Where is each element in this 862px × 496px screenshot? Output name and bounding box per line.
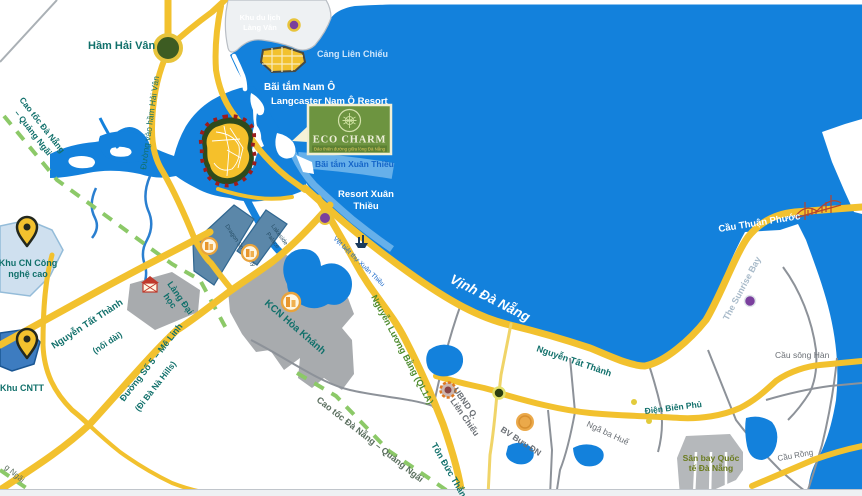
svg-text:Bãi tắm Nam Ô: Bãi tắm Nam Ô — [264, 80, 335, 93]
svg-text:Sân bay Quốc: Sân bay Quốc — [683, 453, 740, 463]
svg-text:tế Đà Nẵng: tế Đà Nẵng — [689, 462, 733, 473]
svg-text:Bãi tắm Xuân Thiều: Bãi tắm Xuân Thiều — [315, 158, 394, 169]
svg-text:ECO CHARM: ECO CHARM — [313, 135, 386, 146]
svg-text:Khu CNTT: Khu CNTT — [0, 383, 44, 393]
svg-text:Cảng Liên Chiểu: Cảng Liên Chiểu — [317, 49, 388, 59]
svg-text:Khu CN Công: Khu CN Công — [0, 258, 57, 268]
svg-text:Đảo thiên đường giữa lòng Đà N: Đảo thiên đường giữa lòng Đà Nẵng — [314, 147, 386, 152]
svg-text:Hầm Hải Vân: Hầm Hải Vân — [88, 40, 156, 52]
svg-text:Khu du lịch: Khu du lịch — [240, 13, 281, 22]
svg-text:Thiều: Thiều — [353, 201, 379, 212]
svg-text:Làng Vân: Làng Vân — [243, 23, 277, 32]
svg-text:Resort Xuân: Resort Xuân — [338, 189, 394, 200]
svg-text:nghệ cao: nghệ cao — [8, 269, 48, 279]
svg-text:Cầu sông Hàn: Cầu sông Hàn — [775, 350, 830, 360]
